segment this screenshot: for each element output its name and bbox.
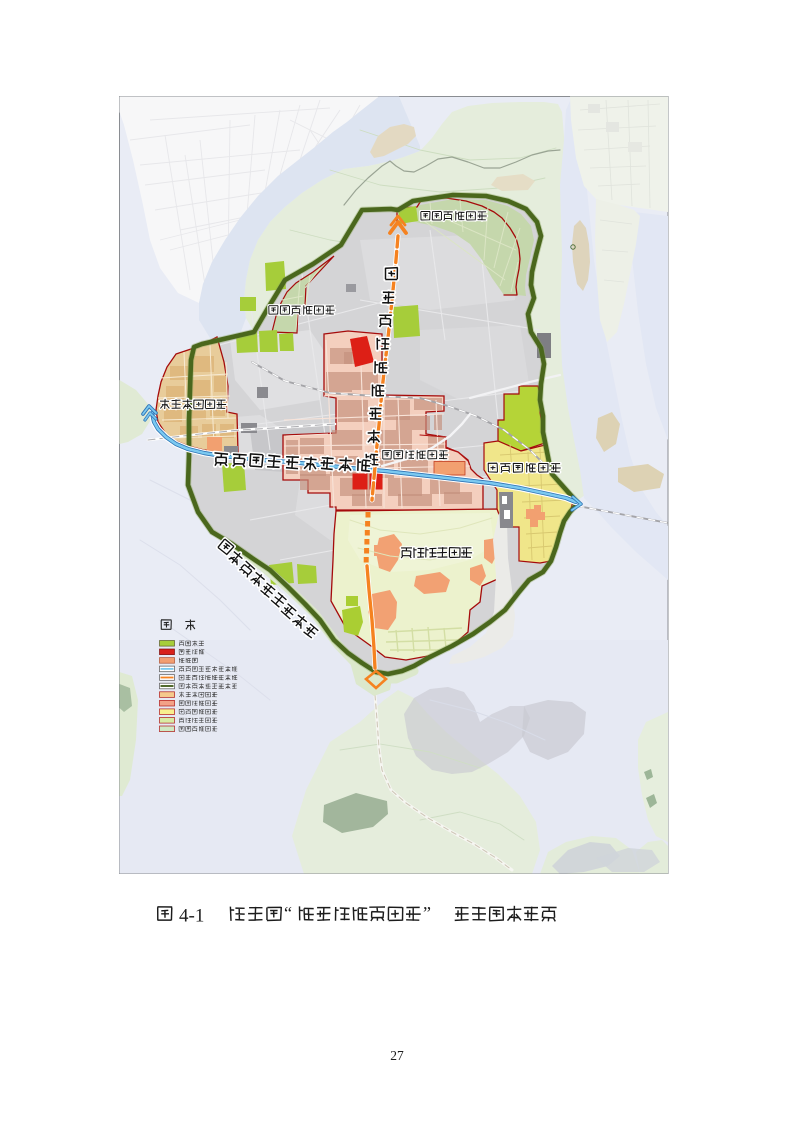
svg-text:27: 27 [390, 1048, 404, 1063]
svg-text:4-1: 4-1 [179, 906, 204, 927]
svg-text:”: ” [423, 903, 431, 923]
svg-text:“: “ [284, 903, 292, 923]
